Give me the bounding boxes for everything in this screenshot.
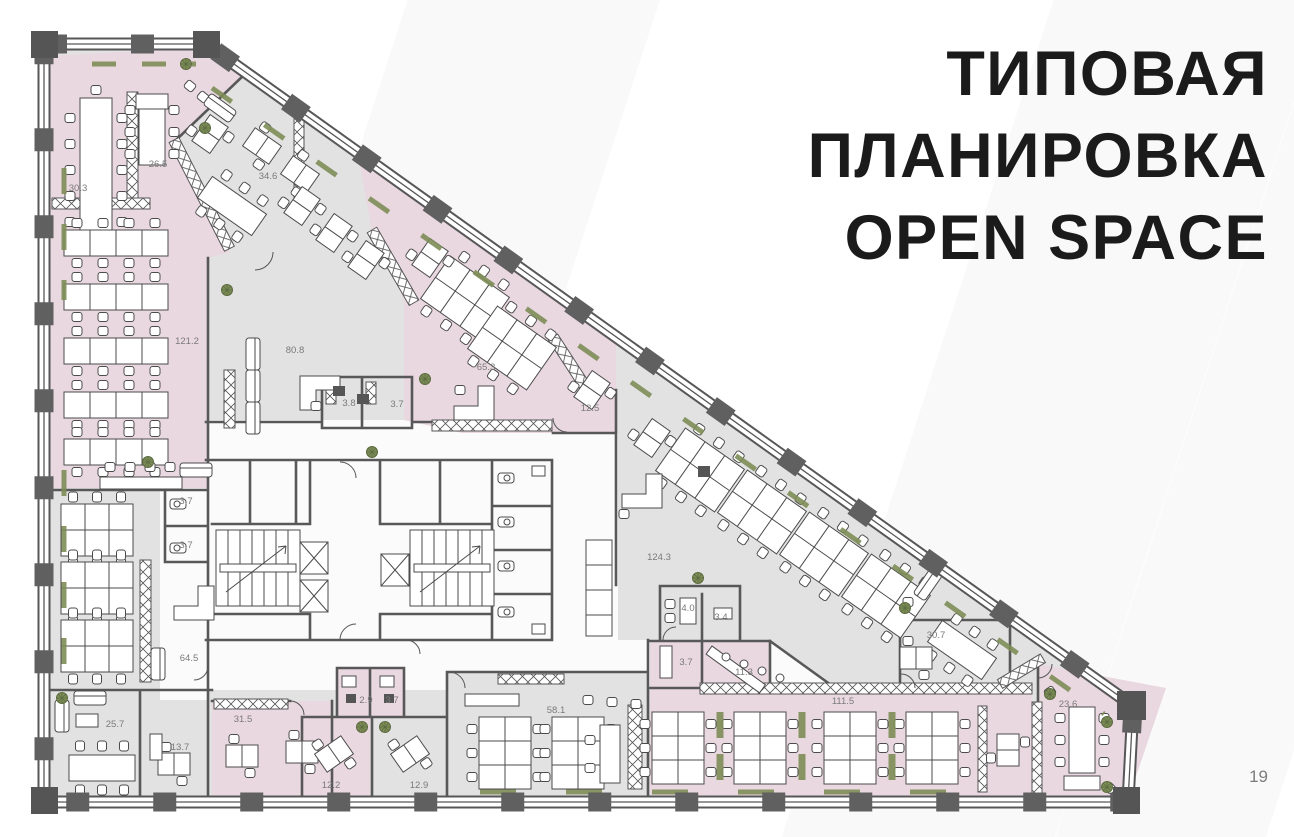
room-area-label: 80.8 <box>286 345 305 356</box>
room-area-label: 11.3 <box>735 667 753 678</box>
room-area-label: 30.7 <box>927 630 946 641</box>
room-area-label: 2.9 <box>359 695 372 706</box>
room-area-label: 64.5 <box>180 653 199 664</box>
elevator-icon <box>381 554 409 586</box>
slide: 30.326.534.6121.280.83.83.765.312.5124.3… <box>0 0 1294 837</box>
room-area-label: 34.6 <box>259 171 278 182</box>
elevator-icon <box>300 580 328 612</box>
room-area-label: 3.7 <box>179 540 192 551</box>
room-area-label: 3.4 <box>714 612 727 623</box>
room-area-label: 58.1 <box>547 705 566 716</box>
title-line-1: ТИПОВАЯ <box>808 34 1268 116</box>
reception-desk <box>100 477 182 489</box>
page-number: 19 <box>1249 767 1268 787</box>
room-area-label: 111.5 <box>832 696 854 707</box>
page-title: ТИПОВАЯ ПЛАНИРОВКА OPEN SPACE <box>808 34 1268 280</box>
room-area-label: 25.7 <box>106 719 125 730</box>
room-area-label: 124.3 <box>647 552 671 563</box>
room-area-label: 3.7 <box>390 399 403 410</box>
title-line-3: OPEN SPACE <box>808 198 1268 280</box>
room-area-label: 4.0 <box>681 603 694 614</box>
room-area-label: 26.5 <box>149 159 168 170</box>
room-area-label: 3.7 <box>679 657 692 668</box>
room-area-label: 12.2 <box>322 780 341 791</box>
room-area-label: 65.3 <box>477 362 496 373</box>
elevator-icon <box>300 542 328 574</box>
room-area-label: 23.6 <box>1059 699 1078 710</box>
room-area-label: 3.8 <box>342 398 355 409</box>
room-area-label: 13.7 <box>171 742 190 753</box>
room-area-label: 121.2 <box>175 336 199 347</box>
room-area-label: 3.7 <box>179 496 192 507</box>
title-line-2: ПЛАНИРОВКА <box>808 116 1268 198</box>
room-area-label: 30.3 <box>69 183 88 194</box>
room-area-label: 3.7 <box>385 695 398 706</box>
room-area-label: 12.9 <box>410 780 429 791</box>
room-area-label: 12.5 <box>581 403 600 414</box>
room-area-label: 31.5 <box>234 714 253 725</box>
